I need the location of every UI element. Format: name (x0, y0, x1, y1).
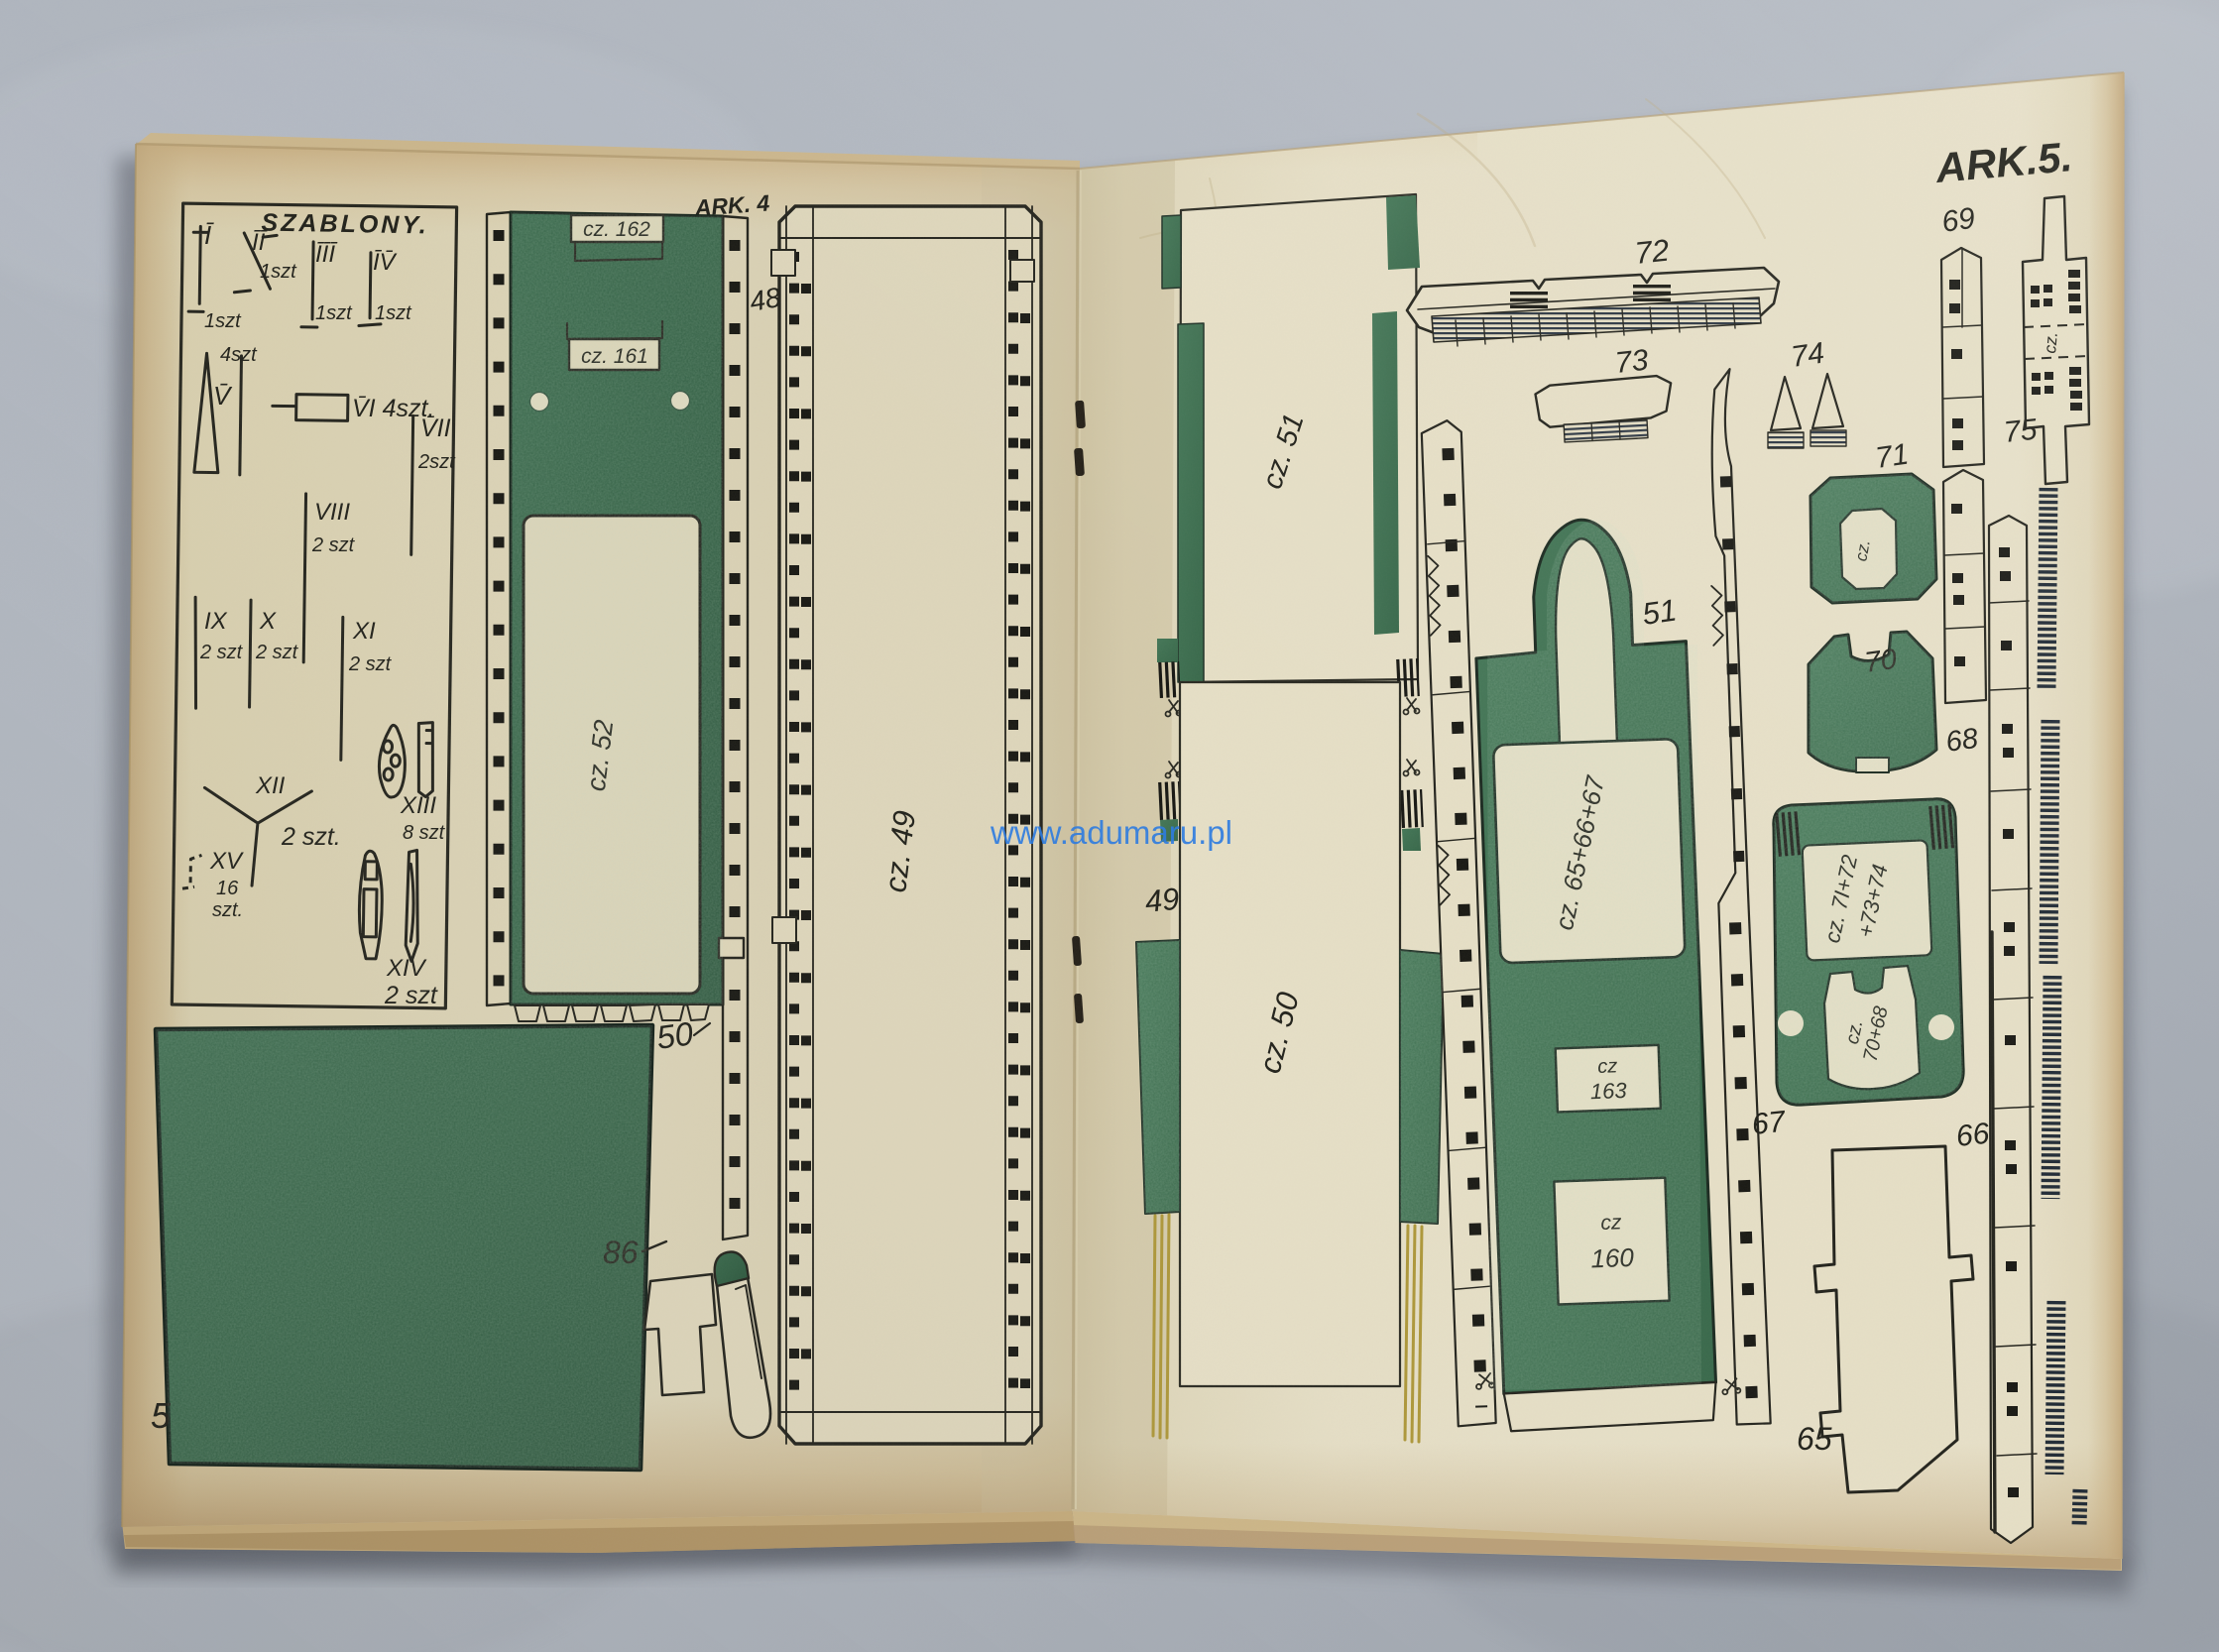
svg-text:www.adumaru.pl: www.adumaru.pl (990, 814, 1232, 851)
